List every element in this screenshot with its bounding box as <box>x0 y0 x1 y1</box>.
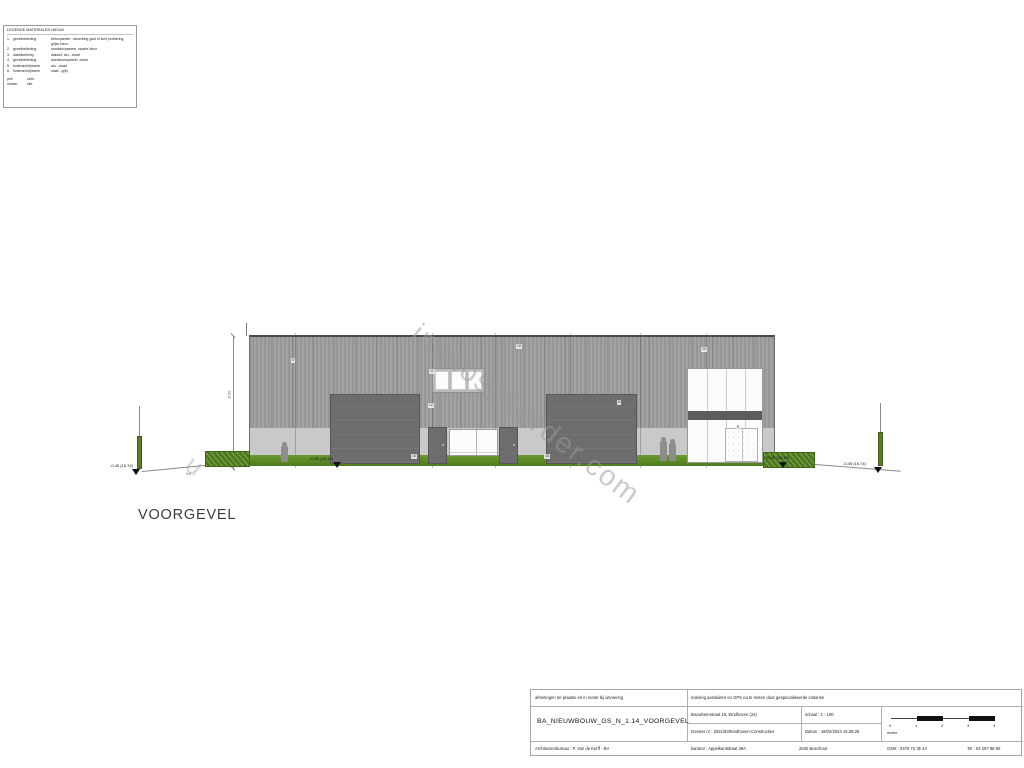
facade-tag: 14 <box>701 347 707 352</box>
sectional-door-left <box>330 394 420 464</box>
legend-footer-key: peil <box>7 77 27 81</box>
legend-footer-value: zicht <box>27 77 133 81</box>
office-address: kantoor : Appelkantstraat 39A <box>691 746 746 751</box>
level-label-hedge: +0.00 (16.19) <box>765 455 789 460</box>
scale-bar-segment <box>917 716 943 721</box>
legend-row-term: buitenschrijnwerk <box>13 69 51 73</box>
hedge-left <box>205 451 250 467</box>
entrance-double-door <box>725 428 758 462</box>
materials-legend: LEGENDE MATERIALEN NIEUW 1. gevelbekledi… <box>3 25 137 108</box>
scale-bar-tick: 3 <box>967 723 969 728</box>
boundary-post-left <box>137 436 142 469</box>
legend-row-term: buitenschrijnwerk <box>13 64 51 68</box>
roof-rod-line <box>246 323 247 336</box>
scale-bar-tick: 4 <box>993 723 995 728</box>
facade-tag: 16 <box>544 454 550 459</box>
level-marker-icon <box>779 462 787 468</box>
person-body <box>660 441 667 461</box>
legend-row-term: gevelbekleding <box>13 58 51 62</box>
legend-row: 6. buitenschrijnwerk staal - grijs <box>7 69 133 73</box>
person-figure <box>281 442 288 462</box>
drawing-name: BA_NIEUWBOUW_GS_N_1.14_VOORGEVEL <box>537 718 689 725</box>
ground-floor-window <box>449 429 498 456</box>
grid-line <box>640 333 641 468</box>
architectural-drawing-page: LEGENDE MATERIALEN NIEUW 1. gevelbekledi… <box>0 0 1024 768</box>
legend-row: 5. buitenschrijnwerk alu - zwart <box>7 64 133 68</box>
scale-bar-tick: 1 <box>915 723 917 728</box>
facade-tag: 12 <box>429 369 435 374</box>
facade-tag: 5 <box>736 425 740 430</box>
person-figure <box>669 439 676 461</box>
glazed-entrance-bay <box>687 368 763 463</box>
scale-bar-unit: meter <box>887 730 897 735</box>
legend-row-desc: staal - grijs <box>51 69 133 73</box>
office-city: 2530 Boechout <box>799 746 827 751</box>
legend-row-term: gevelbekleding <box>13 47 51 51</box>
boundary-post-line <box>880 403 881 432</box>
facade-tag: 6 <box>291 358 295 363</box>
facade-tag: 12 <box>428 403 434 408</box>
legend-row-desc: alu - zwart <box>51 64 133 68</box>
window-sill <box>450 452 497 453</box>
legend-row: 2. gevelbekleding sandwichpaneel, zwarte… <box>7 47 133 51</box>
legend-row: 4. gevelbekleding aluminiumpaneel, zwart <box>7 58 133 62</box>
note-sewerage: riolering aansluiten en GPS na te meten … <box>691 695 824 700</box>
legend-footer-row: niveau site <box>7 82 133 86</box>
level-marker-icon <box>333 462 341 468</box>
titleblock-divider <box>881 706 882 741</box>
boundary-post-right <box>878 432 883 466</box>
legend-footer-value: site <box>27 82 133 86</box>
door-split-line <box>742 429 743 461</box>
level-marker-icon <box>132 469 140 475</box>
legend-row-desc: aluminiumpaneel, zwart <box>51 58 133 62</box>
drawing-scale: schaal : 1 - 100 <box>805 712 834 717</box>
titleblock-divider <box>687 723 881 724</box>
dimension-line <box>233 336 234 469</box>
person-body <box>669 443 676 461</box>
level-label-left-post: -0.45 (15.74) <box>110 463 133 468</box>
project-address: Bouwheerstraat 16, Eindhoven (24) <box>691 712 757 717</box>
person-body <box>281 446 288 462</box>
title-block: afmetingen ter plaatse en in meter bij u… <box>530 689 1022 756</box>
scale-bar-tick: 2 <box>941 723 943 728</box>
legend-footer-key: niveau <box>7 82 27 86</box>
titleblock-divider <box>687 690 688 741</box>
legend-row-term: gevelbekleding <box>13 37 51 46</box>
pedestrian-door-left <box>428 427 447 464</box>
legend-row-desc: sandwichpaneel, zwarte kleur <box>51 47 133 51</box>
door-handle <box>513 444 515 446</box>
door-handle <box>442 444 444 446</box>
pedestrian-door-right <box>499 427 518 464</box>
person-figure <box>660 437 667 461</box>
legend-row: 1. gevelbekleding betonpaneel - afwerkin… <box>7 37 133 46</box>
titleblock-divider <box>531 741 1023 742</box>
gsm-number: GSM : 0475 72 35 44 <box>887 746 927 751</box>
scale-bar-tick: 0 <box>889 723 891 728</box>
level-label-door: +0.00 (16.19) <box>309 456 333 461</box>
floor-edge-band <box>688 411 762 420</box>
view-title: VOORGEVEL <box>138 507 236 523</box>
note-dimensions: afmetingen ter plaatse en in meter bij u… <box>535 695 623 700</box>
architect-firm: Architectenbureau : P. Van de Kerff - BV <box>535 746 609 751</box>
facade-tag: 15 <box>411 454 417 459</box>
facade-tag: 8 <box>617 400 621 405</box>
drawing-date: Datum : 19/02/2024 16:38:26 <box>805 729 859 734</box>
legend-footer: peil zicht niveau site <box>7 77 133 87</box>
level-label-right-post: -0.45 (15.74) <box>843 461 866 466</box>
grid-line <box>295 333 296 468</box>
titleblock-divider <box>531 706 1023 707</box>
legend-row: 3. dakafwerking dakzeil, alu - zwart <box>7 53 133 57</box>
legend-row-desc: betonpaneel - afwerking glad of licht pr… <box>51 37 133 46</box>
dossier-number: Dossier nr : 2021/83/Eindhoven-Construct… <box>691 729 774 734</box>
legend-footer-row: peil zicht <box>7 77 133 81</box>
dimension-label: 8.50 <box>226 391 231 399</box>
boundary-post-line <box>139 406 140 436</box>
legend-row-term: dakafwerking <box>13 53 51 57</box>
scale-bar-segment <box>969 716 995 721</box>
tel-number: Tel : 03 297 96 90 <box>967 746 1000 751</box>
facade-tag: 10 <box>516 344 522 349</box>
legend-row-desc: dakzeil, alu - zwart <box>51 53 133 57</box>
level-marker-icon <box>874 467 882 473</box>
legend-title: LEGENDE MATERIALEN NIEUW <box>7 28 133 35</box>
